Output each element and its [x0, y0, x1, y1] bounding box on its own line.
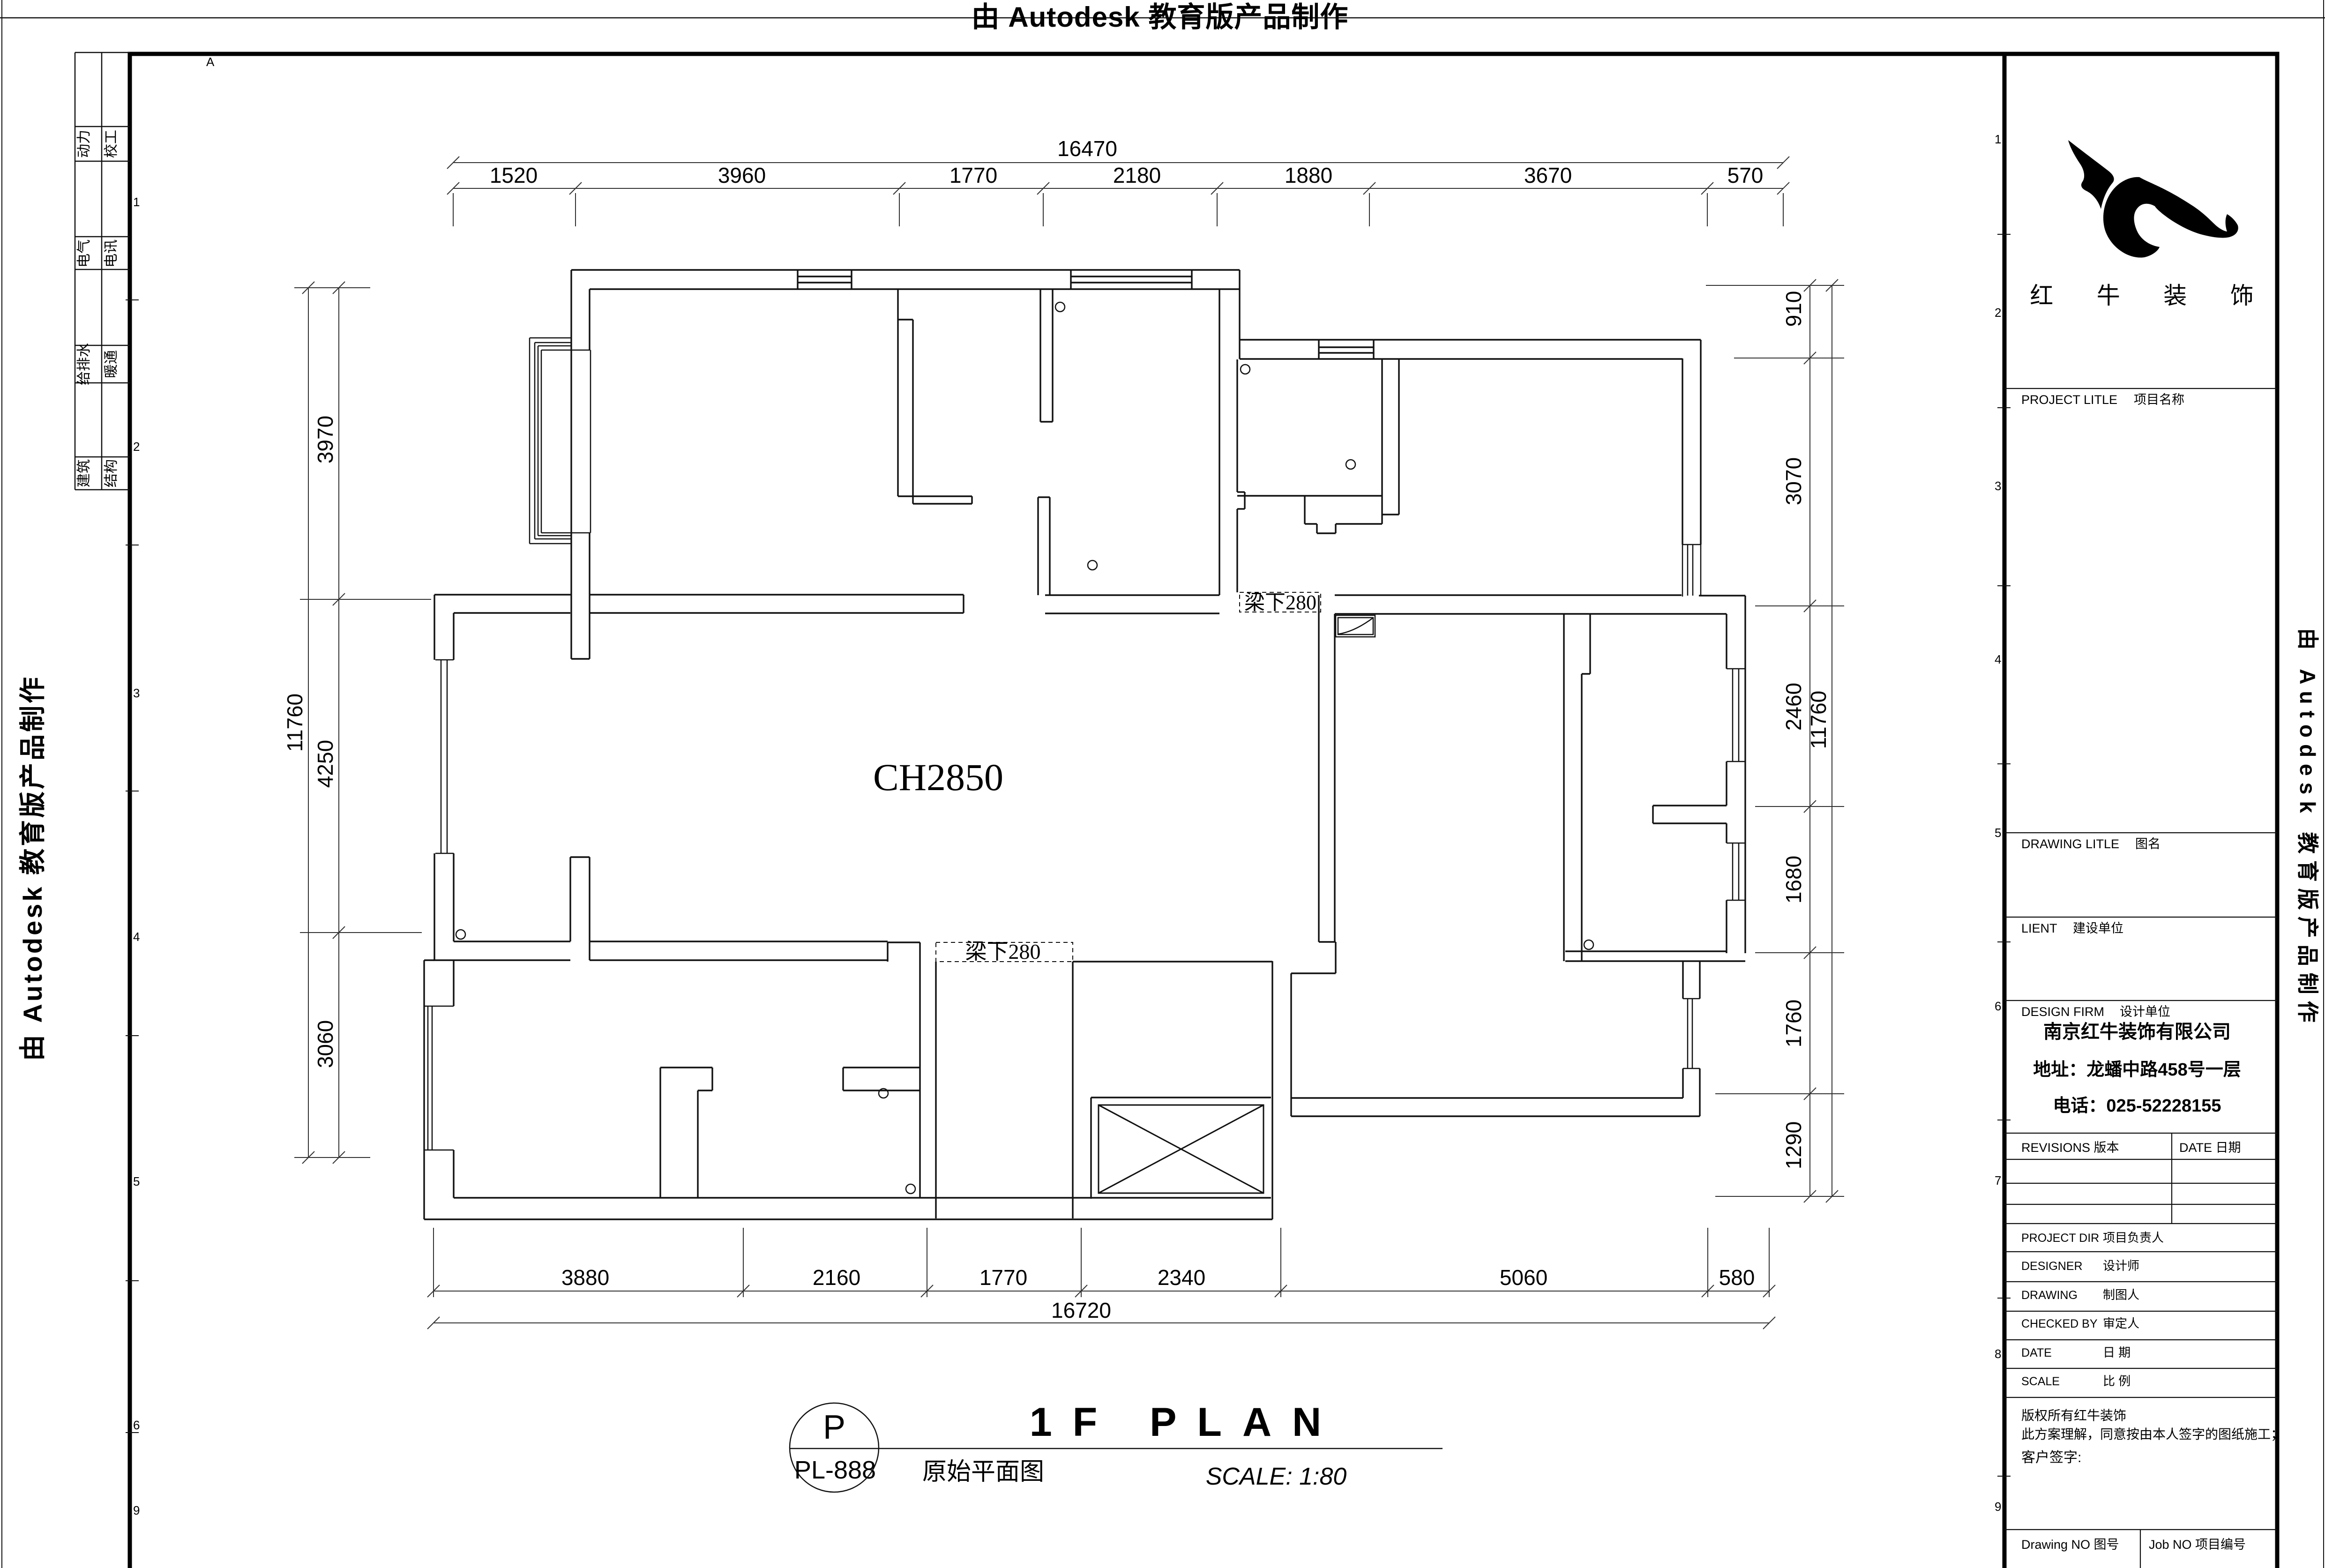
svg-text:暖通: 暖通: [104, 350, 119, 378]
svg-text:4: 4: [1995, 652, 2001, 666]
svg-text:电话：025-52228155: 电话：025-52228155: [2053, 1096, 2221, 1116]
svg-text:6: 6: [1995, 999, 2001, 1013]
svg-text:日 期: 日 期: [2103, 1345, 2131, 1359]
svg-text:1880: 1880: [1285, 163, 1332, 187]
svg-text:动力: 动力: [76, 130, 92, 158]
svg-text:580: 580: [1719, 1265, 1755, 1290]
svg-text:5: 5: [1995, 826, 2001, 840]
svg-text:SCALE: SCALE: [2021, 1375, 2060, 1388]
svg-text:11760: 11760: [283, 694, 307, 752]
svg-text:比 例: 比 例: [2103, 1374, 2131, 1388]
svg-text:3880: 3880: [561, 1265, 609, 1290]
svg-text:3060: 3060: [313, 1020, 337, 1068]
svg-text:P: P: [823, 1409, 845, 1446]
svg-text:由 Autodesk 教育版产品制作: 由 Autodesk 教育版产品制作: [972, 1, 1349, 33]
svg-text:红 牛 装 饰: 红 牛 装 饰: [2030, 283, 2273, 309]
svg-text:16470: 16470: [1057, 136, 1117, 161]
svg-text:DRAWING LITLE: DRAWING LITLE: [2021, 837, 2119, 851]
svg-text:设计单位: 设计单位: [2120, 1005, 2170, 1019]
svg-text:3: 3: [133, 686, 140, 700]
svg-text:REVISIONS 版本: REVISIONS 版本: [2021, 1141, 2119, 1155]
svg-text:2340: 2340: [1158, 1265, 1205, 1290]
svg-text:1680: 1680: [1781, 856, 1806, 903]
svg-text:1520: 1520: [490, 163, 538, 187]
svg-text:1770: 1770: [979, 1265, 1027, 1290]
svg-text:梁下280: 梁下280: [1244, 591, 1316, 614]
svg-text:制图人: 制图人: [2103, 1288, 2139, 1302]
svg-text:项目名称: 项目名称: [2134, 393, 2184, 407]
svg-text:3070: 3070: [1781, 457, 1806, 505]
svg-text:PROJECT DIR: PROJECT DIR: [2021, 1232, 2099, 1245]
svg-text:9: 9: [133, 1503, 140, 1517]
svg-text:4: 4: [133, 930, 140, 944]
svg-text:1770: 1770: [949, 163, 997, 187]
svg-text:3960: 3960: [718, 163, 766, 187]
svg-text:图名: 图名: [2135, 837, 2161, 851]
svg-text:SCALE: 1:80: SCALE: 1:80: [1206, 1463, 1347, 1490]
svg-text:6: 6: [133, 1418, 140, 1432]
svg-text:5060: 5060: [1500, 1265, 1548, 1290]
svg-text:2: 2: [1995, 306, 2001, 320]
svg-text:CH2850: CH2850: [873, 756, 1003, 799]
svg-text:电气: 电气: [76, 239, 92, 268]
svg-text:3670: 3670: [1524, 163, 1572, 187]
svg-text:电讯: 电讯: [104, 239, 119, 268]
svg-text:570: 570: [1727, 163, 1764, 187]
svg-text:8: 8: [1995, 1347, 2001, 1361]
svg-text:1290: 1290: [1781, 1121, 1806, 1169]
svg-text:建筑: 建筑: [76, 459, 92, 487]
svg-text:DESIGN FIRM: DESIGN FIRM: [2021, 1005, 2104, 1019]
svg-text:DATE 日期: DATE 日期: [2179, 1141, 2241, 1155]
svg-text:2180: 2180: [1113, 163, 1161, 187]
svg-text:7: 7: [1995, 1173, 2001, 1187]
svg-text:2460: 2460: [1781, 683, 1806, 731]
svg-text:梁下280: 梁下280: [965, 940, 1041, 963]
svg-text:2160: 2160: [813, 1265, 860, 1290]
svg-text:设计师: 设计师: [2103, 1259, 2139, 1273]
svg-text:校工: 校工: [104, 130, 119, 158]
svg-text:地址：龙蟠中路458号一层: 地址：龙蟠中路458号一层: [2033, 1060, 2241, 1080]
svg-text:3970: 3970: [313, 416, 337, 463]
svg-text:910: 910: [1781, 291, 1806, 327]
svg-text:4250: 4250: [313, 740, 337, 788]
svg-text:版权所有红牛装饰: 版权所有红牛装饰: [2021, 1408, 2126, 1423]
svg-text:PROJECT LITLE: PROJECT LITLE: [2021, 393, 2117, 407]
svg-text:11760: 11760: [1806, 691, 1831, 749]
svg-text:给排水: 给排水: [76, 343, 92, 385]
svg-text:1: 1: [133, 195, 140, 209]
svg-text:此方案理解，同意按由本人签字的图纸施工；: 此方案理解，同意按由本人签字的图纸施工；: [2021, 1427, 2284, 1441]
svg-text:1: 1: [1995, 132, 2001, 146]
svg-text:LIENT: LIENT: [2021, 921, 2057, 935]
svg-text:Drawing NO 图号: Drawing NO 图号: [2021, 1538, 2119, 1552]
svg-text:3: 3: [1995, 479, 2001, 493]
svg-text:DESIGNER: DESIGNER: [2021, 1260, 2083, 1273]
svg-text:建设单位: 建设单位: [2073, 921, 2123, 935]
svg-text:由 Autodesk 教育版产品制作: 由 Autodesk 教育版产品制作: [18, 675, 47, 1061]
svg-text:1F PLAN: 1F PLAN: [1030, 1400, 1342, 1445]
svg-text:审定人: 审定人: [2103, 1316, 2139, 1330]
svg-text:南京红牛装饰有限公司: 南京红牛装饰有限公司: [2043, 1022, 2231, 1042]
svg-text:结构: 结构: [104, 459, 119, 487]
svg-text:16720: 16720: [1051, 1298, 1111, 1322]
svg-text:DATE: DATE: [2021, 1346, 2052, 1359]
svg-text:PL-888: PL-888: [794, 1456, 876, 1484]
svg-text:5: 5: [133, 1174, 140, 1188]
svg-text:Job NO 项目编号: Job NO 项目编号: [2149, 1538, 2246, 1552]
svg-text:原始平面图: 原始平面图: [922, 1459, 1044, 1486]
svg-text:2: 2: [133, 440, 140, 454]
svg-text:9: 9: [1995, 1500, 2001, 1514]
svg-text:1760: 1760: [1781, 1000, 1806, 1047]
svg-text:DRAWING: DRAWING: [2021, 1289, 2078, 1302]
svg-text:CHECKED BY: CHECKED BY: [2021, 1317, 2098, 1330]
svg-text:A: A: [206, 55, 215, 69]
svg-text:项目负责人: 项目负责人: [2103, 1231, 2164, 1245]
svg-text:客户签字:: 客户签字:: [2021, 1450, 2081, 1465]
svg-text:由 Autodesk 教育版产品制作: 由 Autodesk 教育版产品制作: [2295, 628, 2320, 1029]
